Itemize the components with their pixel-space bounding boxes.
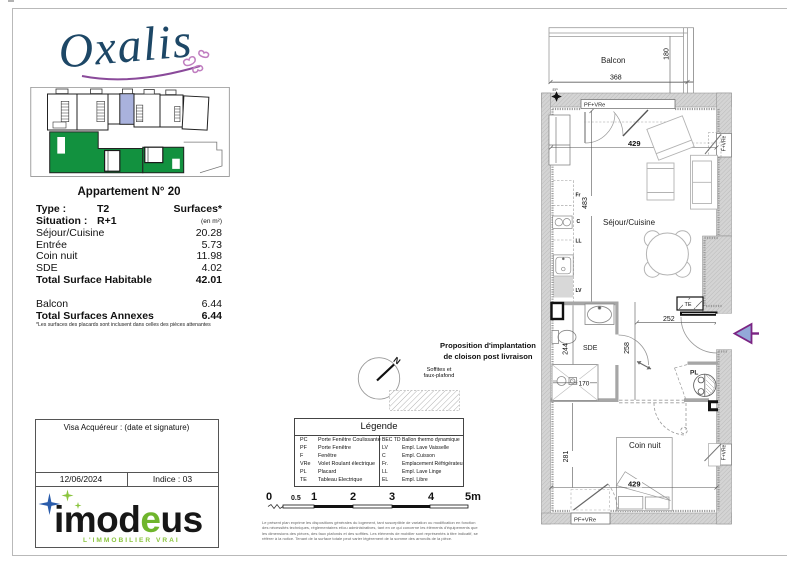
svg-text:281: 281 [563, 451, 570, 463]
svg-text:252: 252 [663, 316, 675, 323]
svg-text:PL: PL [690, 370, 698, 377]
svg-text:180: 180 [664, 48, 671, 60]
svg-text:429: 429 [628, 139, 641, 148]
svg-text:429: 429 [628, 480, 641, 489]
svg-text:5m: 5m [465, 491, 481, 503]
svg-text:imodeus: imodeus [54, 499, 203, 540]
svg-text:PF+VRe: PF+VRe [574, 518, 596, 524]
svg-text:0: 0 [266, 491, 272, 503]
svg-text:Balcon: Balcon [601, 56, 625, 65]
svg-text:EP: EP [553, 87, 559, 92]
svg-text:Oxalis: Oxalis [58, 18, 195, 79]
svg-text:C: C [577, 219, 581, 225]
svg-text:170: 170 [579, 381, 590, 388]
svg-text:LV: LV [576, 288, 583, 294]
svg-text:258: 258 [624, 342, 631, 354]
svg-text:PF+VRe: PF+VRe [584, 103, 605, 109]
svg-text:3: 3 [389, 491, 395, 503]
svg-text:SDE: SDE [583, 345, 598, 352]
svg-text:483: 483 [582, 197, 589, 209]
svg-text:1: 1 [311, 491, 317, 503]
svg-text:4: 4 [428, 491, 435, 503]
svg-text:0.5: 0.5 [291, 495, 301, 502]
svg-text:Fr: Fr [576, 193, 581, 199]
svg-text:368: 368 [610, 75, 622, 82]
svg-text:244: 244 [563, 343, 570, 355]
svg-text:F+VRe: F+VRe [722, 135, 728, 151]
svg-text:LL: LL [576, 239, 582, 245]
svg-text:Coin nuit: Coin nuit [629, 441, 661, 450]
svg-text:Séjour/Cuisine: Séjour/Cuisine [603, 218, 656, 227]
svg-text:F+VRe: F+VRe [722, 444, 728, 460]
svg-text:TE: TE [685, 302, 692, 308]
svg-text:L'IMMOBILIER VRAI: L'IMMOBILIER VRAI [83, 537, 180, 544]
svg-text:2: 2 [350, 491, 356, 503]
